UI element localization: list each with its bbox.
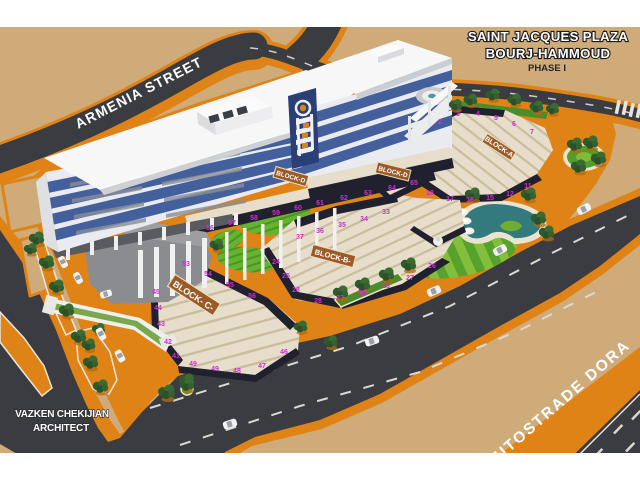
svg-text:12: 12: [506, 191, 514, 198]
svg-text:59: 59: [272, 210, 280, 217]
svg-text:58: 58: [250, 215, 258, 222]
svg-text:7: 7: [530, 129, 534, 136]
svg-text:65: 65: [410, 180, 418, 187]
svg-text:46: 46: [280, 349, 288, 356]
svg-text:4: 4: [476, 111, 480, 118]
svg-text:47: 47: [258, 363, 266, 370]
svg-text:45: 45: [152, 289, 160, 296]
svg-text:56: 56: [248, 293, 256, 300]
svg-text:28: 28: [314, 298, 322, 305]
svg-text:11: 11: [524, 183, 532, 190]
svg-text:3: 3: [456, 111, 460, 118]
svg-text:61: 61: [316, 200, 324, 207]
svg-text:44: 44: [154, 305, 162, 312]
svg-text:55: 55: [226, 282, 234, 289]
svg-text:56: 56: [206, 225, 214, 232]
svg-text:PHASE I: PHASE I: [528, 63, 566, 74]
svg-text:BOURJ-HAMMOUD: BOURJ-HAMMOUD: [486, 46, 611, 61]
svg-text:60: 60: [294, 205, 302, 212]
svg-text:VAZKEN CHEKIJIAN: VAZKEN CHEKIJIAN: [15, 409, 109, 420]
svg-text:49: 49: [211, 366, 219, 373]
svg-text:28: 28: [382, 283, 390, 290]
svg-text:63: 63: [364, 190, 372, 197]
svg-text:SAINT JACQUES PLAZA: SAINT JACQUES PLAZA: [468, 29, 628, 44]
svg-text:18: 18: [426, 190, 434, 197]
svg-text:6: 6: [512, 121, 516, 128]
svg-text:49: 49: [189, 361, 197, 368]
svg-text:48: 48: [233, 368, 241, 375]
svg-text:34: 34: [360, 216, 368, 223]
svg-text:26: 26: [358, 290, 366, 297]
svg-text:5: 5: [494, 115, 498, 122]
svg-text:43: 43: [157, 321, 165, 328]
svg-text:17: 17: [446, 196, 454, 203]
svg-text:64: 64: [388, 185, 396, 192]
svg-text:33: 33: [382, 209, 390, 216]
svg-text:27: 27: [406, 275, 414, 282]
svg-text:62: 62: [340, 195, 348, 202]
svg-text:ARCHITECT: ARCHITECT: [33, 423, 89, 434]
svg-text:54: 54: [204, 271, 212, 278]
svg-text:53: 53: [182, 261, 190, 268]
svg-text:36: 36: [316, 228, 324, 235]
svg-text:2: 2: [438, 119, 442, 126]
svg-text:24: 24: [272, 259, 280, 266]
svg-text:35: 35: [338, 222, 346, 229]
svg-text:27: 27: [336, 295, 344, 302]
svg-text:28: 28: [292, 287, 300, 294]
svg-text:25: 25: [282, 273, 290, 280]
svg-text:37: 37: [296, 234, 304, 241]
svg-text:15: 15: [486, 195, 494, 202]
svg-text:26: 26: [428, 263, 436, 270]
svg-text:41: 41: [172, 353, 180, 360]
svg-text:42: 42: [164, 339, 172, 346]
svg-text:16: 16: [466, 197, 474, 204]
svg-text:57: 57: [228, 220, 236, 227]
